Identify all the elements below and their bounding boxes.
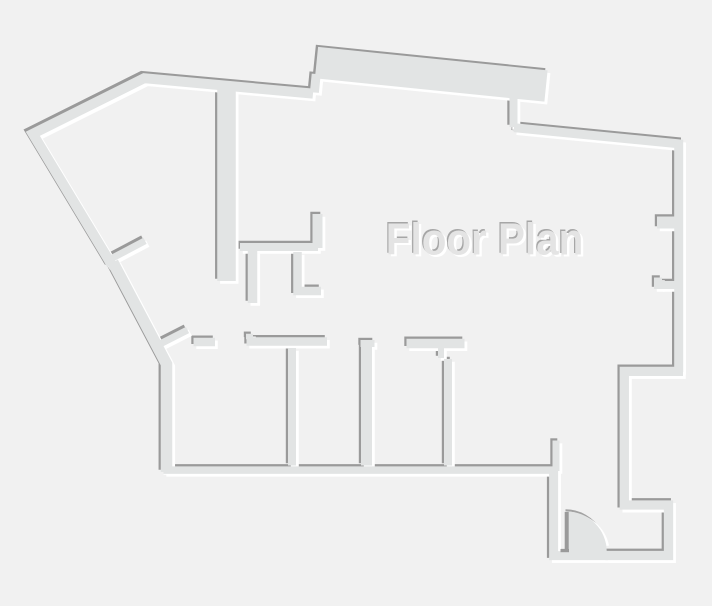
svg-text:Floor Plan: Floor Plan <box>386 215 584 264</box>
